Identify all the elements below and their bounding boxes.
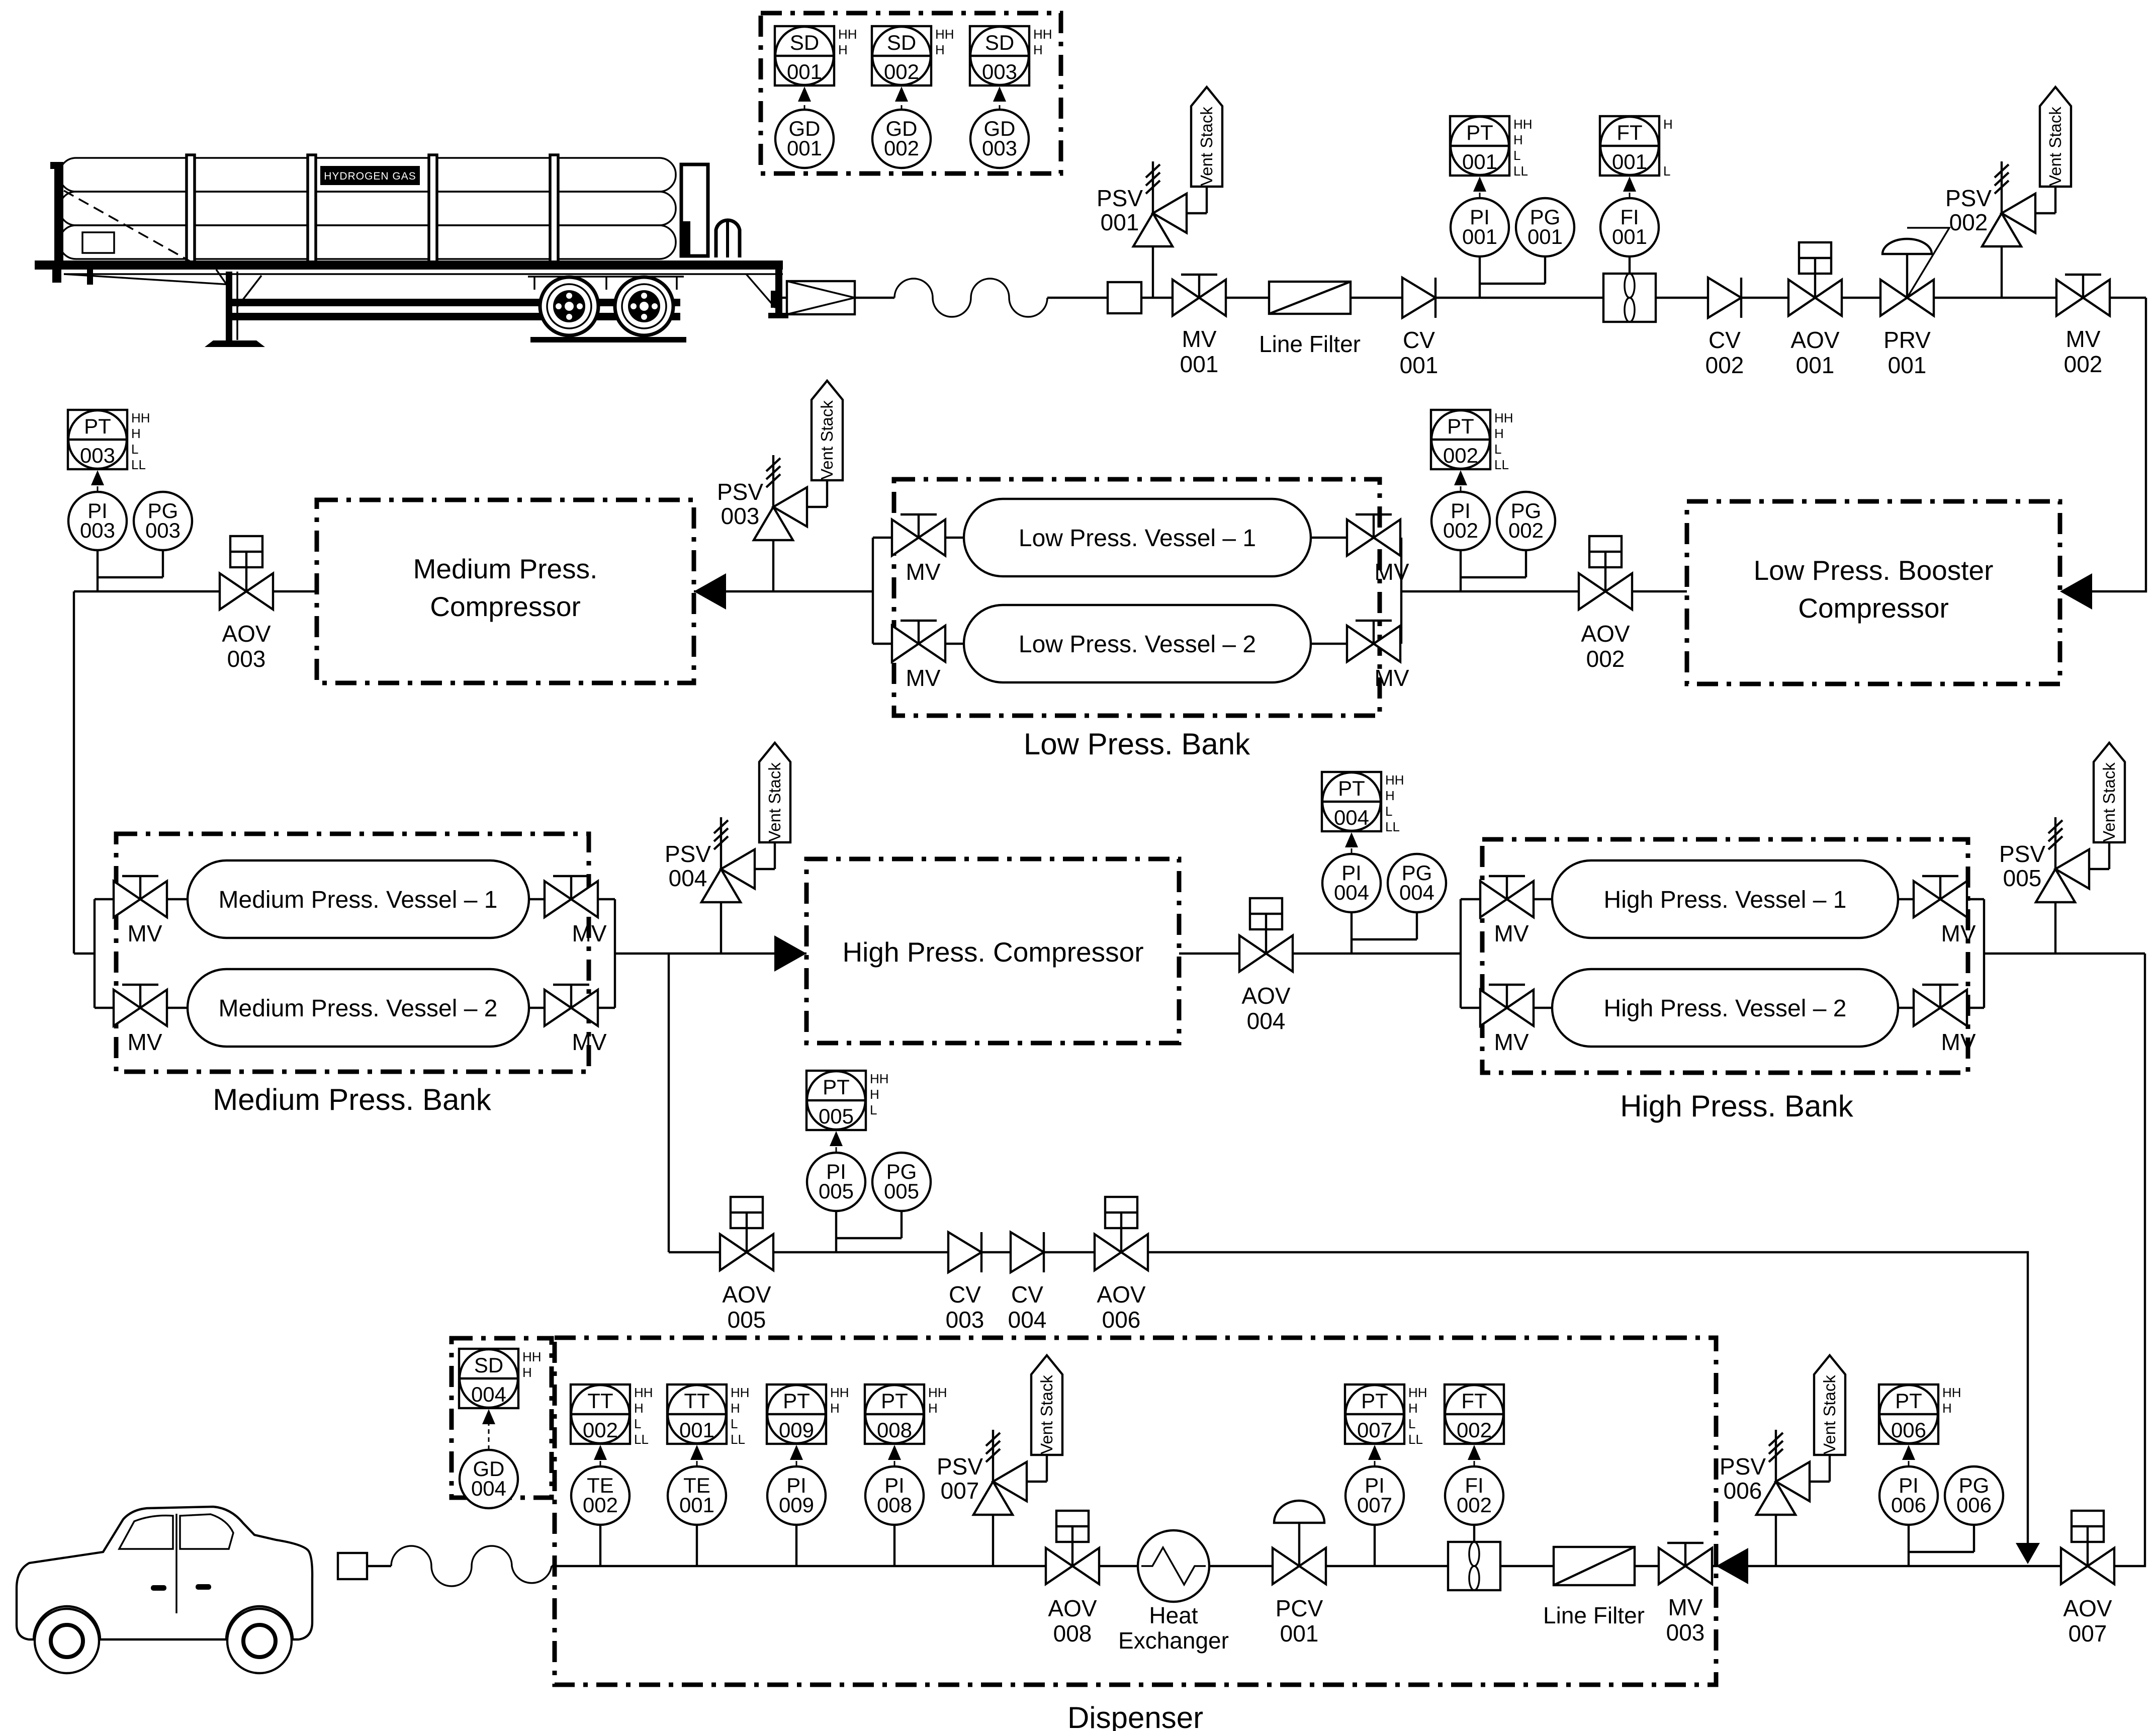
svg-text:MV: MV <box>1375 559 1409 585</box>
svg-text:LL: LL <box>634 1432 649 1447</box>
svg-text:CV: CV <box>1011 1281 1043 1308</box>
svg-text:MV: MV <box>1668 1594 1703 1620</box>
svg-text:001: 001 <box>1528 225 1563 248</box>
svg-text:H: H <box>1033 42 1043 57</box>
svg-text:AOV: AOV <box>1241 983 1290 1009</box>
svg-text:SD: SD <box>790 31 819 54</box>
svg-text:HH: HH <box>935 27 954 42</box>
svg-text:MV: MV <box>1941 1029 1976 1055</box>
svg-text:007: 007 <box>1357 1493 1392 1517</box>
svg-text:001: 001 <box>1462 225 1497 248</box>
svg-text:002: 002 <box>1705 352 1744 378</box>
svg-text:004: 004 <box>1399 881 1434 904</box>
svg-text:PT: PT <box>1361 1389 1388 1413</box>
svg-text:004: 004 <box>1334 806 1369 829</box>
svg-text:HH: HH <box>131 410 150 425</box>
svg-text:HH: HH <box>1385 772 1404 788</box>
svg-text:004: 004 <box>1247 1008 1286 1034</box>
svg-text:FT: FT <box>1461 1389 1487 1413</box>
svg-text:007: 007 <box>2069 1620 2107 1647</box>
svg-text:MV: MV <box>1494 920 1529 946</box>
svg-text:PSV: PSV <box>717 479 763 505</box>
svg-text:L: L <box>870 1102 877 1117</box>
svg-text:CV: CV <box>1403 327 1435 353</box>
svg-text:Low Press. Vessel – 2: Low Press. Vessel – 2 <box>1019 631 1256 658</box>
svg-text:007: 007 <box>1357 1418 1392 1442</box>
svg-text:AOV: AOV <box>722 1281 771 1308</box>
svg-text:High Press. Compressor: High Press. Compressor <box>842 936 1143 968</box>
svg-text:002: 002 <box>583 1418 618 1442</box>
svg-text:008: 008 <box>877 1418 912 1442</box>
svg-text:H: H <box>1385 788 1395 803</box>
svg-text:SD: SD <box>474 1353 503 1377</box>
svg-text:PT: PT <box>1447 414 1474 438</box>
svg-text:PT: PT <box>1466 121 1493 144</box>
svg-text:AOV: AOV <box>1048 1595 1097 1621</box>
svg-text:MV: MV <box>1941 920 1976 946</box>
svg-text:HH: HH <box>830 1385 849 1400</box>
svg-text:MV: MV <box>906 665 941 691</box>
svg-text:002: 002 <box>2064 351 2103 377</box>
svg-text:LL: LL <box>1494 457 1509 472</box>
svg-text:H: H <box>1942 1401 1952 1416</box>
svg-text:001: 001 <box>1888 352 1927 378</box>
svg-text:Vent Stack: Vent Stack <box>2046 107 2064 186</box>
svg-text:PT: PT <box>84 414 111 438</box>
svg-text:L: L <box>1494 442 1501 457</box>
svg-text:001: 001 <box>1612 225 1647 248</box>
svg-text:001: 001 <box>1796 352 1835 378</box>
svg-text:HH: HH <box>1513 117 1533 132</box>
svg-text:LL: LL <box>1513 163 1528 179</box>
svg-text:SD: SD <box>887 31 916 54</box>
svg-text:002: 002 <box>583 1493 618 1517</box>
svg-text:H: H <box>830 1401 840 1416</box>
svg-text:HH: HH <box>522 1349 542 1364</box>
svg-text:PSV: PSV <box>1945 185 1992 211</box>
svg-text:HH: HH <box>928 1385 947 1400</box>
svg-text:MV: MV <box>1494 1029 1529 1055</box>
svg-text:L: L <box>1663 163 1670 179</box>
svg-text:HH: HH <box>731 1385 750 1400</box>
svg-text:High Press. Bank: High Press. Bank <box>1620 1089 1854 1123</box>
svg-text:AOV: AOV <box>2063 1595 2112 1621</box>
svg-text:AOV: AOV <box>222 621 271 647</box>
svg-text:H: H <box>1408 1401 1418 1416</box>
svg-text:001: 001 <box>1462 150 1497 174</box>
svg-text:H: H <box>1513 132 1523 147</box>
svg-text:L: L <box>634 1416 641 1431</box>
svg-text:007: 007 <box>941 1478 979 1504</box>
svg-text:005: 005 <box>2003 865 2042 891</box>
svg-text:Low Press. Booster: Low Press. Booster <box>1754 555 1994 586</box>
svg-text:HH: HH <box>634 1385 653 1400</box>
svg-text:PSV: PSV <box>665 841 711 867</box>
svg-text:AOV: AOV <box>1790 327 1839 353</box>
svg-text:Heat: Heat <box>1149 1602 1198 1628</box>
svg-text:002: 002 <box>1457 1493 1492 1517</box>
svg-text:MV: MV <box>572 920 607 946</box>
svg-text:FT: FT <box>1616 121 1642 144</box>
svg-text:PRV: PRV <box>1883 327 1931 353</box>
svg-text:High Press. Vessel – 1: High Press. Vessel – 1 <box>1604 887 1847 913</box>
svg-text:L: L <box>1408 1416 1415 1431</box>
svg-text:002: 002 <box>1949 209 1988 235</box>
svg-text:H: H <box>1494 426 1504 441</box>
svg-text:003: 003 <box>1666 1619 1705 1646</box>
svg-text:002: 002 <box>884 136 919 160</box>
svg-text:LL: LL <box>731 1432 745 1447</box>
svg-text:L: L <box>1513 148 1520 163</box>
svg-text:004: 004 <box>1008 1307 1047 1333</box>
svg-text:CV: CV <box>949 1281 981 1308</box>
svg-text:MV: MV <box>1375 665 1409 691</box>
svg-text:Medium Press. Vessel – 2: Medium Press. Vessel – 2 <box>219 995 498 1022</box>
svg-text:001: 001 <box>679 1493 714 1517</box>
svg-text:Low Press. Bank: Low Press. Bank <box>1024 727 1250 761</box>
svg-text:Medium Press.: Medium Press. <box>413 553 598 584</box>
svg-text:PSV: PSV <box>1999 841 2045 867</box>
svg-text:Vent Stack: Vent Stack <box>818 400 836 480</box>
svg-text:002: 002 <box>884 60 919 83</box>
svg-text:Dispenser: Dispenser <box>1067 1701 1203 1731</box>
svg-text:TT: TT <box>587 1389 613 1413</box>
svg-text:HH: HH <box>838 27 857 42</box>
svg-text:004: 004 <box>471 1382 506 1406</box>
svg-text:LL: LL <box>1408 1432 1423 1447</box>
svg-text:AOV: AOV <box>1581 621 1630 647</box>
svg-text:002: 002 <box>1457 1418 1492 1442</box>
svg-text:PT: PT <box>823 1075 850 1099</box>
svg-text:HH: HH <box>1408 1385 1427 1400</box>
svg-text:Vent Stack: Vent Stack <box>1820 1375 1839 1454</box>
svg-text:002: 002 <box>1443 444 1478 467</box>
svg-text:004: 004 <box>669 865 707 891</box>
svg-text:H: H <box>634 1401 644 1416</box>
svg-text:001: 001 <box>1101 209 1139 235</box>
svg-text:Medium Press. Bank: Medium Press. Bank <box>213 1083 492 1116</box>
svg-text:L: L <box>1385 804 1392 819</box>
svg-text:Vent Stack: Vent Stack <box>765 762 784 842</box>
svg-text:005: 005 <box>819 1179 854 1203</box>
svg-text:HH: HH <box>1494 410 1513 425</box>
svg-text:004: 004 <box>1334 881 1369 904</box>
svg-text:H: H <box>928 1401 938 1416</box>
svg-text:Line Filter: Line Filter <box>1259 331 1361 357</box>
svg-text:SD: SD <box>985 31 1014 54</box>
svg-text:003: 003 <box>982 60 1017 83</box>
svg-text:Compressor: Compressor <box>430 591 581 622</box>
svg-text:003: 003 <box>80 444 115 467</box>
svg-text:006: 006 <box>1891 1418 1926 1442</box>
svg-text:H: H <box>522 1365 532 1380</box>
svg-text:H: H <box>935 42 945 57</box>
svg-text:PT: PT <box>783 1389 810 1413</box>
svg-text:L: L <box>731 1416 738 1431</box>
svg-text:003: 003 <box>721 503 760 529</box>
svg-text:004: 004 <box>471 1477 506 1500</box>
svg-text:PT: PT <box>881 1389 908 1413</box>
svg-text:H: H <box>870 1087 879 1102</box>
svg-text:003: 003 <box>80 518 115 542</box>
svg-text:MV: MV <box>128 1029 162 1055</box>
svg-text:Line Filter: Line Filter <box>1543 1602 1645 1628</box>
svg-text:CV: CV <box>1709 327 1741 353</box>
svg-text:High Press. Vessel – 2: High Press. Vessel – 2 <box>1604 995 1847 1022</box>
svg-text:PT: PT <box>1895 1389 1922 1413</box>
svg-text:LL: LL <box>1385 819 1400 834</box>
svg-text:Medium Press. Vessel – 1: Medium Press. Vessel – 1 <box>219 887 498 913</box>
svg-text:Vent Stack: Vent Stack <box>1197 107 1216 186</box>
svg-text:005: 005 <box>819 1104 854 1128</box>
svg-text:H: H <box>131 426 141 441</box>
svg-text:MV: MV <box>2066 326 2101 352</box>
svg-text:MV: MV <box>572 1029 607 1055</box>
svg-text:L: L <box>131 442 138 457</box>
svg-text:Compressor: Compressor <box>1798 592 1949 624</box>
svg-text:MV: MV <box>906 559 941 585</box>
svg-text:001: 001 <box>787 60 822 83</box>
svg-text:002: 002 <box>1586 646 1625 672</box>
svg-text:HH: HH <box>1942 1385 1961 1400</box>
svg-text:003: 003 <box>946 1307 984 1333</box>
svg-text:008: 008 <box>877 1493 912 1517</box>
svg-text:HH: HH <box>1033 27 1052 42</box>
svg-text:003: 003 <box>982 136 1017 160</box>
svg-text:001: 001 <box>1612 150 1647 174</box>
svg-text:PSV: PSV <box>937 1453 983 1480</box>
svg-text:H: H <box>1663 117 1673 132</box>
svg-text:005: 005 <box>728 1307 766 1333</box>
svg-text:002: 002 <box>1443 518 1478 542</box>
svg-text:Vent Stack: Vent Stack <box>1037 1375 1056 1454</box>
svg-text:MV: MV <box>128 920 162 946</box>
svg-text:HH: HH <box>870 1071 889 1086</box>
svg-text:001: 001 <box>679 1418 714 1442</box>
svg-text:H: H <box>731 1401 740 1416</box>
svg-text:005: 005 <box>884 1179 919 1203</box>
svg-text:006: 006 <box>1956 1493 1992 1517</box>
svg-text:006: 006 <box>1102 1307 1141 1333</box>
svg-text:PCV: PCV <box>1276 1595 1323 1621</box>
svg-text:001: 001 <box>1180 351 1219 377</box>
svg-text:008: 008 <box>1053 1620 1092 1647</box>
svg-text:006: 006 <box>1724 1478 1762 1504</box>
svg-text:003: 003 <box>145 518 181 542</box>
svg-text:001: 001 <box>787 136 822 160</box>
svg-text:PSV: PSV <box>1097 185 1143 211</box>
svg-text:006: 006 <box>1891 1493 1926 1517</box>
svg-text:HYDROGEN GAS: HYDROGEN GAS <box>324 170 416 182</box>
svg-text:PT: PT <box>1338 776 1365 800</box>
svg-text:002: 002 <box>1508 518 1544 542</box>
svg-text:MV: MV <box>1182 326 1217 352</box>
svg-text:H: H <box>838 42 848 57</box>
svg-text:LL: LL <box>131 457 146 472</box>
svg-text:001: 001 <box>1280 1620 1319 1647</box>
svg-text:AOV: AOV <box>1097 1281 1145 1308</box>
svg-text:Exchanger: Exchanger <box>1118 1627 1229 1654</box>
svg-text:003: 003 <box>227 646 266 672</box>
svg-text:Low Press. Vessel – 1: Low Press. Vessel – 1 <box>1019 525 1256 552</box>
svg-text:PSV: PSV <box>1720 1453 1766 1480</box>
svg-text:001: 001 <box>1400 352 1439 378</box>
svg-text:TT: TT <box>684 1389 709 1413</box>
svg-text:Vent Stack: Vent Stack <box>2100 762 2118 842</box>
svg-text:009: 009 <box>779 1418 814 1442</box>
svg-text:009: 009 <box>779 1493 814 1517</box>
